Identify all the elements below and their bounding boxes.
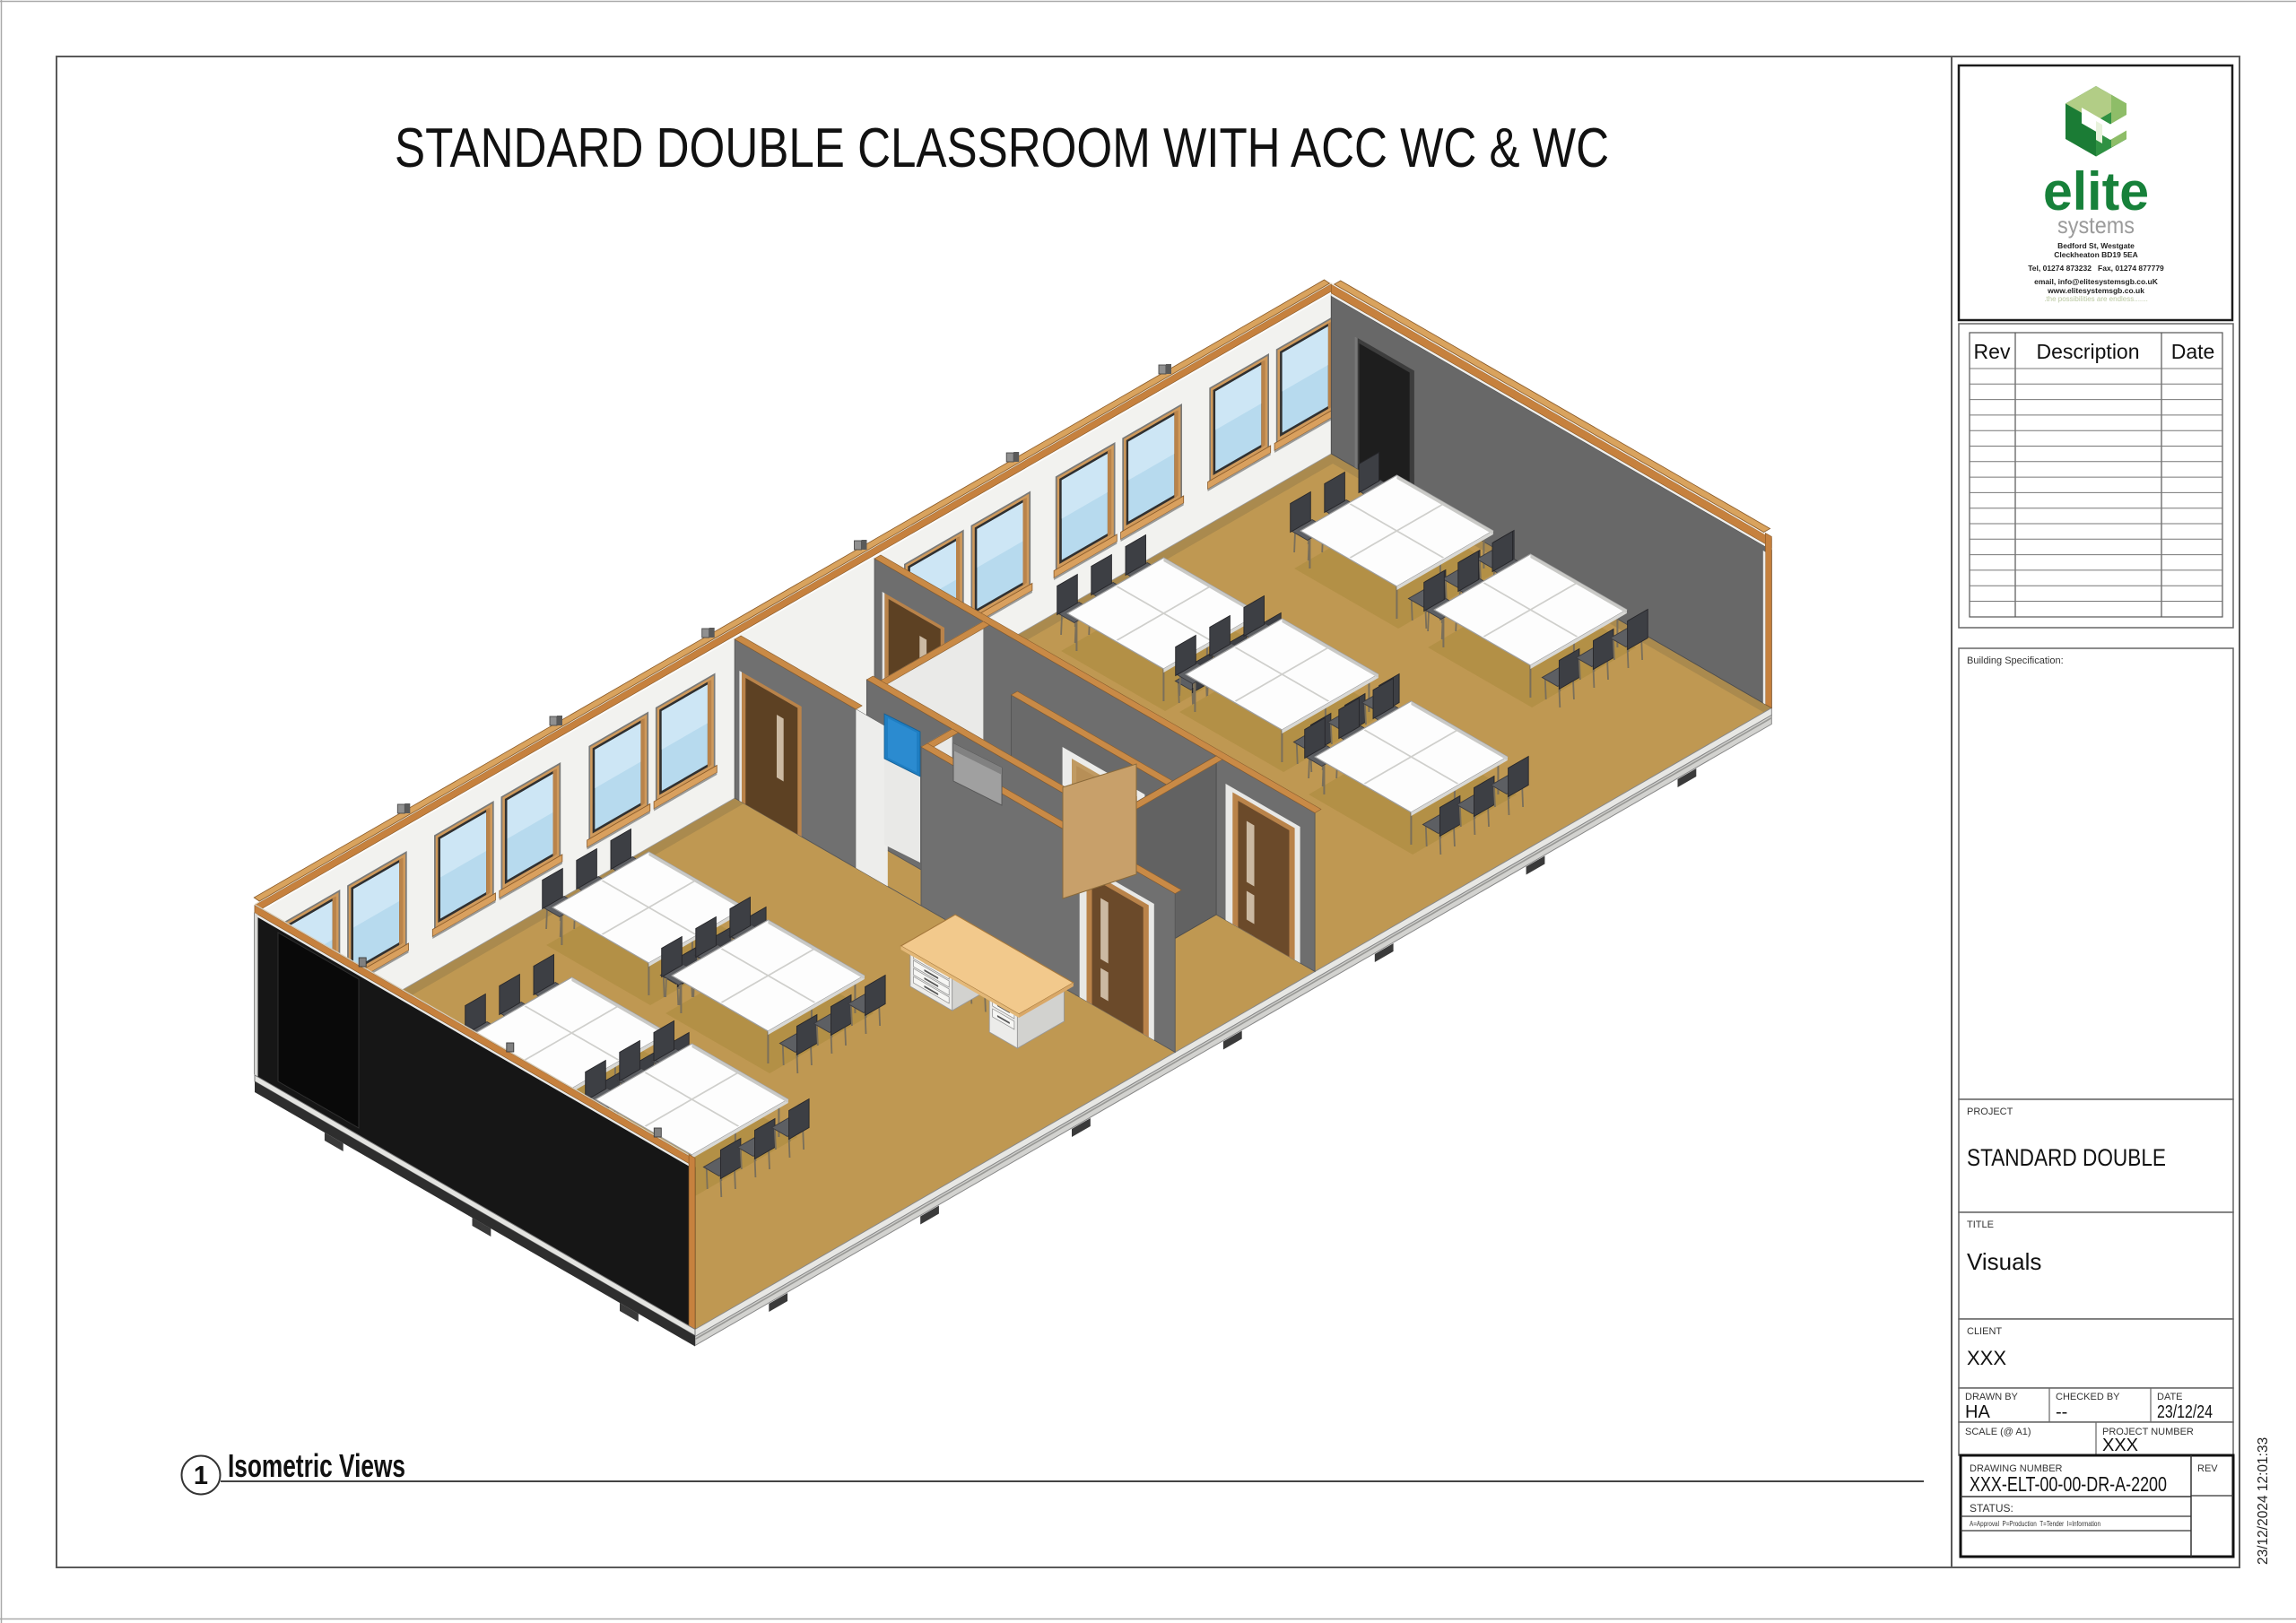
svg-text:--: -- [2056, 1402, 2067, 1422]
svg-text:XXX: XXX [1967, 1347, 2006, 1369]
svg-text:HA: HA [1965, 1402, 1990, 1422]
svg-text:Rev: Rev [1974, 340, 2011, 363]
svg-text:www.elitesystemsgb.co.uk: www.elitesystemsgb.co.uk [2047, 286, 2144, 295]
svg-text:.the possibilities are endless: .the possibilities are endless....... [2044, 295, 2148, 303]
svg-text:Date: Date [2171, 340, 2215, 363]
svg-text:REV: REV [2197, 1463, 2218, 1474]
svg-text:Building Specification:: Building Specification: [1967, 655, 2064, 666]
svg-text:STANDARD DOUBLE: STANDARD DOUBLE [1967, 1144, 2166, 1171]
svg-text:XXX: XXX [2102, 1436, 2138, 1455]
svg-text:PROJECT: PROJECT [1967, 1107, 2013, 1117]
svg-text:XXX-ELT-00-00-DR-A-2200: XXX-ELT-00-00-DR-A-2200 [1970, 1472, 2167, 1496]
svg-text:Tel, 01274 873232 Fax, 01274: Tel, 01274 873232 Fax, 01274 877779 [2028, 264, 2164, 273]
svg-text:STATUS:: STATUS: [1970, 1502, 2013, 1515]
svg-text:Description: Description [2036, 340, 2139, 363]
svg-text:CLIENT: CLIENT [1967, 1326, 2002, 1337]
svg-text:SCALE (@ A1): SCALE (@ A1) [1965, 1427, 2031, 1437]
svg-text:email, info@elitesystemsgb.co.: email, info@elitesystemsgb.co.uK [2034, 277, 2159, 286]
svg-text:Isometric Views: Isometric Views [228, 1447, 405, 1484]
svg-text:DATE: DATE [2157, 1392, 2183, 1402]
svg-text:systems: systems [2057, 212, 2135, 239]
svg-text:DRAWN BY: DRAWN BY [1965, 1392, 2019, 1402]
svg-text:23/12/24: 23/12/24 [2157, 1402, 2213, 1422]
svg-text:Cleckheaton BD19 5EA: Cleckheaton BD19 5EA [2054, 250, 2138, 259]
svg-text:A=Approval P=Production T=Te: A=Approval P=Production T=Tender I=Infor… [1970, 1519, 2100, 1528]
svg-text:1: 1 [194, 1462, 208, 1490]
svg-text:CHECKED BY: CHECKED BY [2056, 1392, 2120, 1402]
svg-text:TITLE: TITLE [1967, 1219, 1994, 1230]
svg-text:STANDARD DOUBLE CLASSROOM WITH: STANDARD DOUBLE CLASSROOM WITH ACC WC & … [395, 117, 1609, 179]
svg-text:Bedford St, Westgate: Bedford St, Westgate [2057, 241, 2135, 250]
svg-text:Visuals: Visuals [1967, 1248, 2041, 1275]
svg-text:23/12/2024 12:01:33: 23/12/2024 12:01:33 [2256, 1437, 2271, 1565]
